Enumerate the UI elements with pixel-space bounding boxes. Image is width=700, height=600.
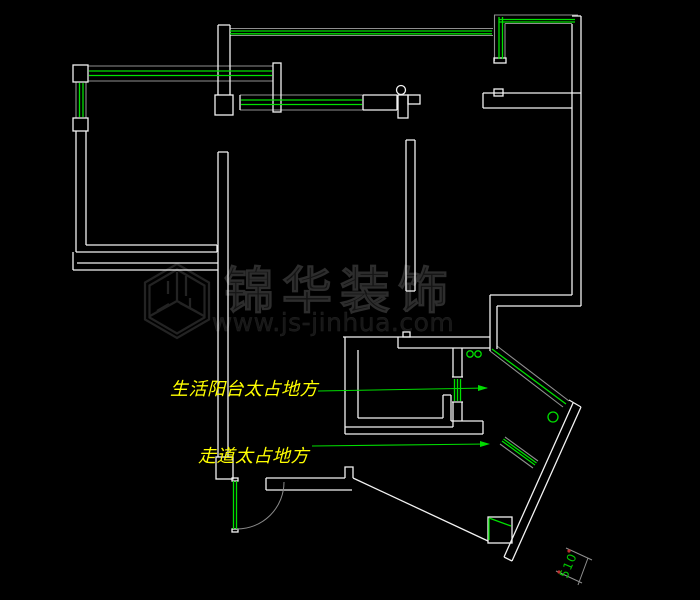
dimension-value-text: 510 — [557, 551, 580, 580]
balcony-note-text: 生活阳台太占地方 — [170, 379, 319, 400]
brand-logo-icon — [145, 264, 209, 338]
annotation-walkway: 走道太占地方 — [198, 441, 490, 467]
walkway-note-text: 走道太占地方 — [198, 446, 310, 467]
watermark: 锦华装饰 www.js-jinhua.com — [145, 262, 456, 338]
dimension-510: 510 — [556, 548, 592, 585]
walkway-leader-line — [312, 444, 488, 446]
watermark-url-text: www.js-jinhua.com — [212, 308, 455, 337]
annotation-balcony: 生活阳台太占地方 — [170, 379, 488, 400]
balcony-leader-line — [318, 388, 487, 391]
walkway-leader-arrow-icon — [480, 441, 490, 447]
balcony-leader-arrow-icon — [478, 385, 488, 391]
door-swing-arc — [237, 482, 284, 529]
window-rails — [76, 15, 578, 468]
floorplan-canvas[interactable]: 锦华装饰 www.js-jinhua.com — [0, 0, 700, 600]
